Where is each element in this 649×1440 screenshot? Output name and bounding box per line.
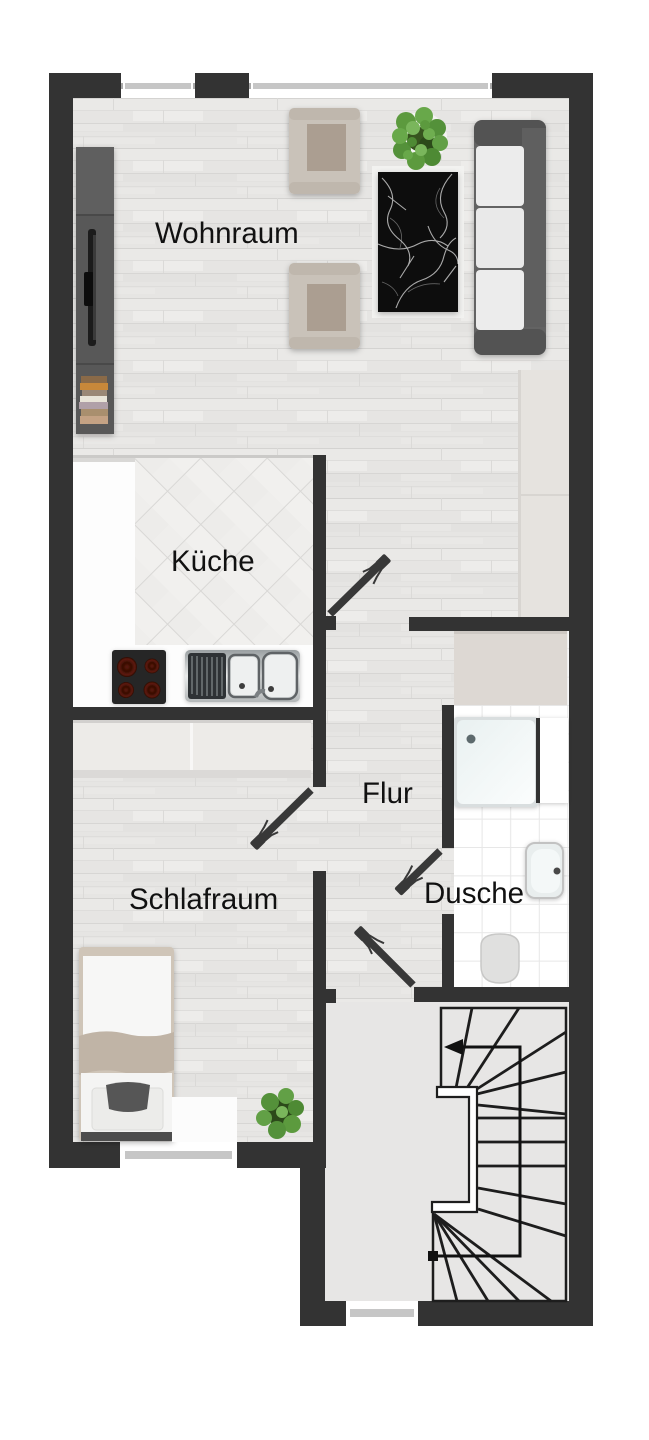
svg-text:Flur: Flur [362,777,413,810]
svg-text:Dusche: Dusche [424,877,524,910]
svg-text:Wohnraum: Wohnraum [155,217,299,250]
svg-text:Schlafraum: Schlafraum [129,883,278,916]
svg-text:Küche: Küche [171,545,255,578]
